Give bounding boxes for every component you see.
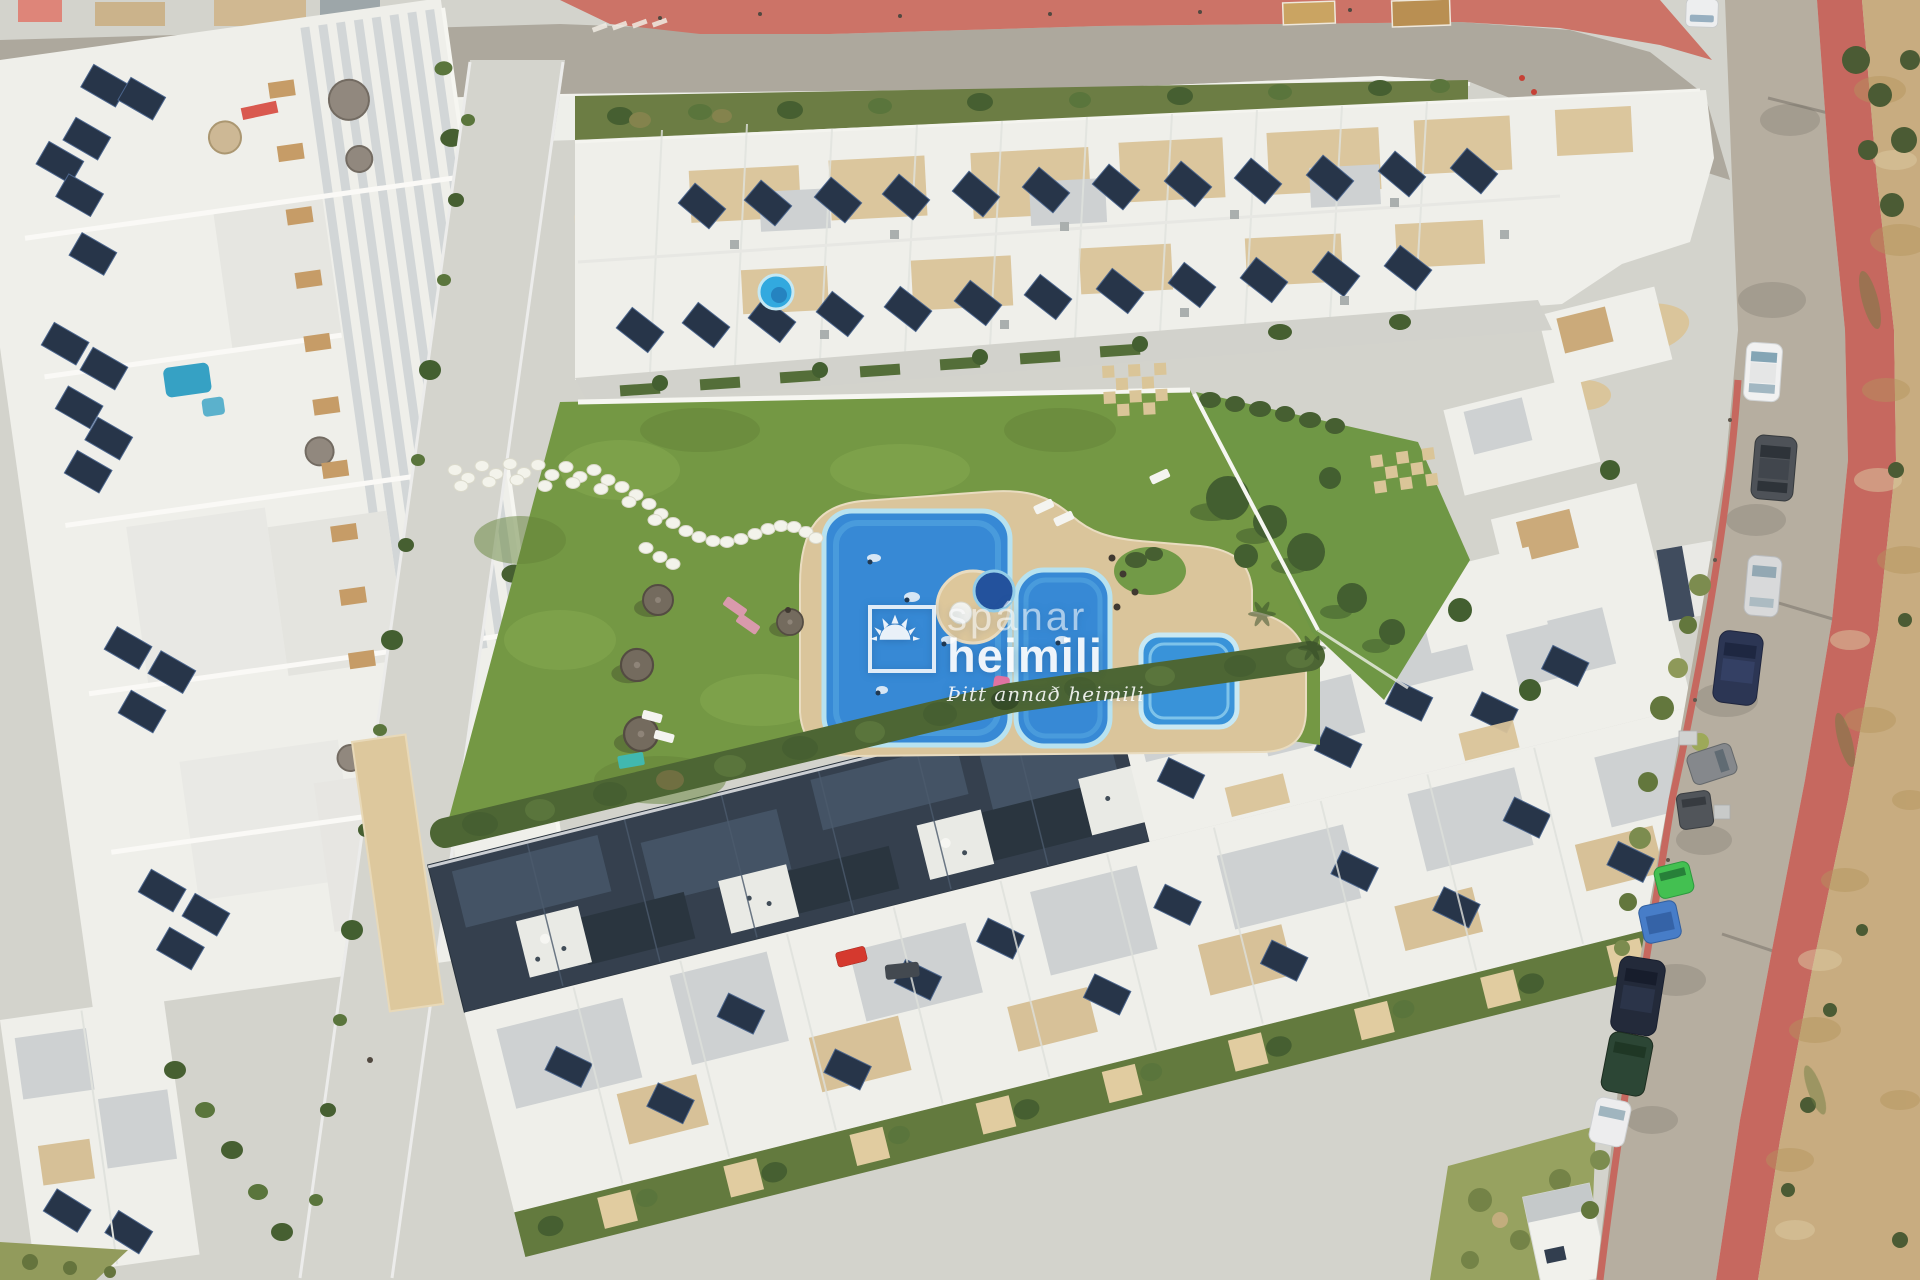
sun-icon-glyph (868, 598, 922, 642)
sun-icon (868, 605, 936, 673)
aerial-photo-stage: spánar heimili Þitt annað heimili (0, 0, 1920, 1280)
brand-tagline: Þitt annað heimili (947, 682, 1145, 706)
brand-name-line2: heimili (947, 634, 1145, 679)
watermark: spánar heimili Þitt annað heimili (868, 598, 1145, 706)
